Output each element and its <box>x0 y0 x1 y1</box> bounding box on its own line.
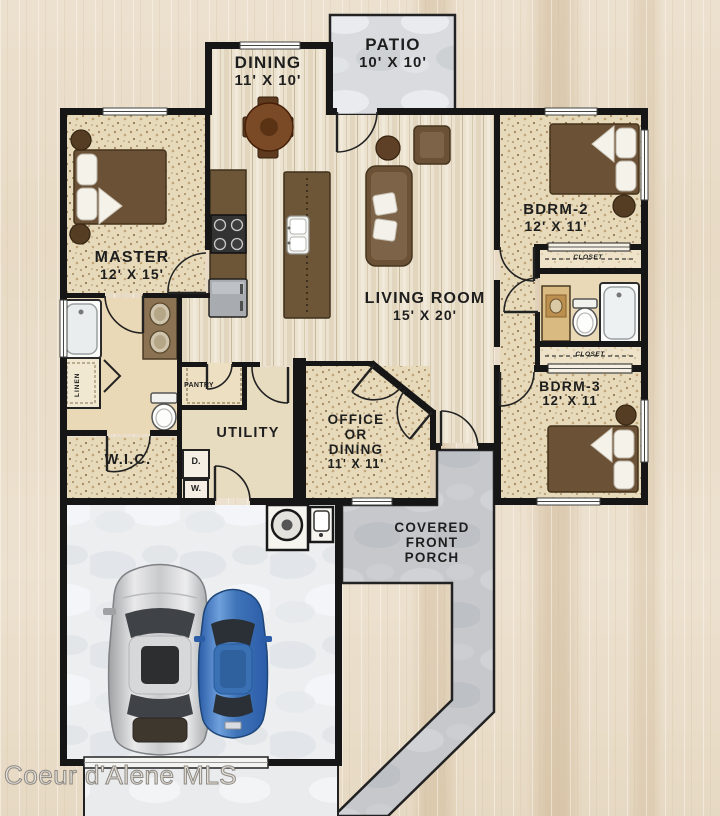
closet-bdrm2-label: CLOSET <box>546 254 630 261</box>
room-name: PORCH <box>380 551 484 566</box>
dining-label: DINING 11' X 10' <box>208 54 328 89</box>
room-name: FRONT <box>380 536 484 551</box>
sofa <box>366 166 412 266</box>
room-dims: 12' X 11' <box>491 219 621 234</box>
room-name: BDRM-3 <box>505 379 635 394</box>
room-dims: 10' X 10' <box>333 55 453 72</box>
side-mirror <box>103 608 116 615</box>
room-dims: 11' X 11' <box>303 458 409 472</box>
linen-label: LINEN <box>74 366 87 404</box>
wic-label: W.I.C. <box>78 453 178 469</box>
room-name: DINING <box>303 443 409 458</box>
room-dims: 15' X 20' <box>345 308 505 323</box>
nightstand <box>71 130 91 150</box>
side-mirror <box>194 636 205 642</box>
room-name: MASTER <box>57 249 207 267</box>
dryer-label: D. <box>183 457 209 467</box>
washer-label: W. <box>184 484 208 493</box>
room-dims: 11' X 10' <box>208 73 328 90</box>
furnace <box>310 507 333 542</box>
nightstand <box>70 224 90 244</box>
armchair <box>414 126 450 164</box>
hall-bath-vanity <box>542 286 570 341</box>
room-name: BDRM-2 <box>491 202 621 219</box>
master-vanity <box>143 295 177 359</box>
room-name: OFFICE <box>303 413 409 428</box>
hall-bath-toilet <box>573 299 597 336</box>
room-name: OR <box>303 428 409 443</box>
room-name: UTILITY <box>198 426 298 442</box>
hall-bath-tub <box>600 283 639 343</box>
master-toilet <box>151 393 177 430</box>
side-mirror <box>261 636 272 642</box>
closet-bdrm3-label: CLOSET <box>548 351 632 358</box>
porch-label: COVERED FRONT PORCH <box>380 521 484 566</box>
room-name: LIVING ROOM <box>345 290 505 308</box>
living-room-label: LIVING ROOM 15' X 20' <box>345 290 505 323</box>
room-name: PATIO <box>333 36 453 55</box>
water-heater <box>267 505 308 550</box>
master-bathtub <box>62 300 101 358</box>
bdrm2-label: BDRM-2 12' X 11' <box>491 202 621 234</box>
room-dims: 12' X 11 <box>505 394 635 408</box>
refrigerator <box>209 279 247 317</box>
mls-watermark: Coeur d'Alene MLS <box>4 760 237 791</box>
patio-label: PATIO 10' X 10' <box>333 36 453 71</box>
room-name: DINING <box>208 54 328 73</box>
side-table <box>376 136 400 160</box>
room-dims: 12' X 15' <box>57 267 207 282</box>
stove <box>211 215 246 253</box>
bdrm3-label: BDRM-3 12' X 11 <box>505 379 635 409</box>
blue-car <box>194 590 272 739</box>
floor-plan: PATIO 10' X 10' DINING 11' X 10' MASTER … <box>0 0 720 816</box>
room-name: W.I.C. <box>78 453 178 469</box>
room-name: COVERED <box>380 521 484 536</box>
utility-label: UTILITY <box>198 426 298 442</box>
island-sink <box>287 216 309 254</box>
pantry-label: PANTRY <box>182 382 216 390</box>
license-plate <box>225 722 241 729</box>
office-label: OFFICE OR DINING 11' X 11' <box>303 413 409 471</box>
master-label: MASTER 12' X 15' <box>57 249 207 282</box>
